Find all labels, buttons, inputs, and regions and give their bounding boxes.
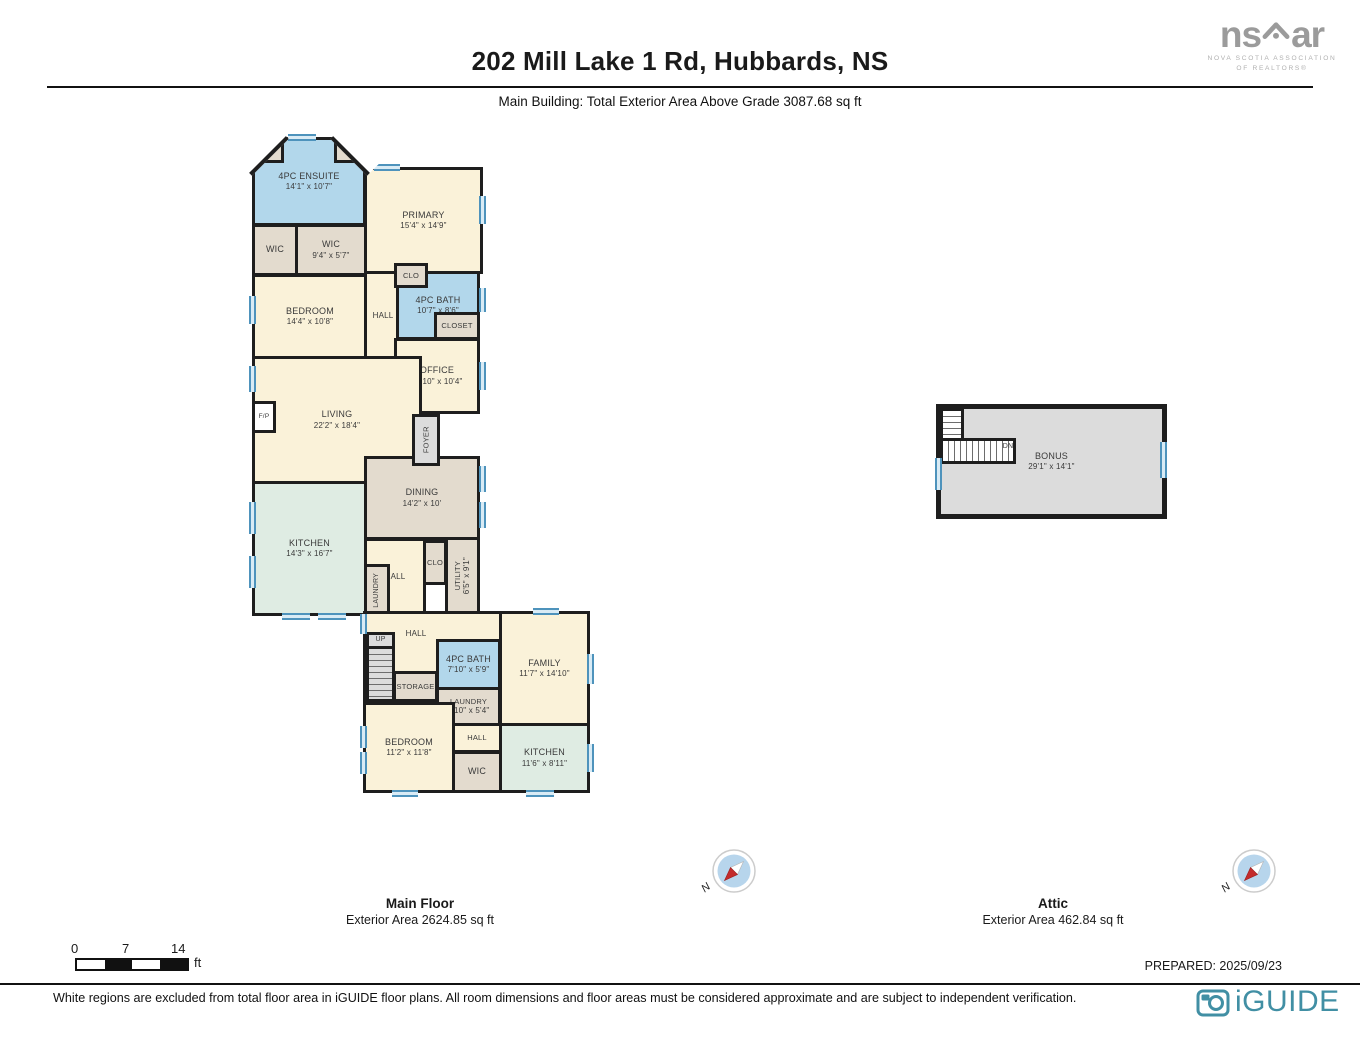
header-divider <box>47 86 1313 88</box>
room-4pc-bath: 4PC BATH7'10" x 5'9" <box>436 639 501 690</box>
room-hall: HALL <box>394 626 438 642</box>
room-hall: HALL <box>452 723 502 753</box>
nsar-caption-2: OF REALTORS® <box>1202 65 1342 72</box>
scale-segment <box>132 960 160 969</box>
compass-attic: N <box>1231 848 1277 894</box>
scale-segment <box>160 960 188 969</box>
scale-unit: ft <box>194 955 201 970</box>
room-label: CLO <box>403 271 419 280</box>
room-label: BEDROOM11'2" x 11'8" <box>385 737 433 758</box>
room-label: HALL <box>467 733 487 742</box>
stair-treads <box>369 649 392 699</box>
room-kitchen: KITCHEN11'6" x 8'11" <box>499 723 590 793</box>
room-foyer: FOYER <box>412 414 440 466</box>
window-marker <box>479 466 486 492</box>
room-area <box>940 408 964 441</box>
room-area <box>366 646 395 702</box>
room-wic: WIC9'4" x 5'7" <box>295 224 367 276</box>
scale-bar-segments <box>75 958 189 971</box>
compass-main-floor: N <box>711 848 757 894</box>
window-marker <box>360 752 367 774</box>
page-subtitle: Main Building: Total Exterior Area Above… <box>0 94 1360 109</box>
window-marker <box>587 654 594 684</box>
window-marker <box>1160 442 1167 478</box>
window-marker <box>249 502 256 534</box>
room-label: CLO <box>427 558 443 567</box>
room-laundry: LAUNDRY <box>364 564 390 616</box>
room-label: DN <box>1003 443 1014 452</box>
window-marker <box>249 366 256 392</box>
room-label: STORAGE <box>397 682 435 691</box>
nsar-ns-text: ns <box>1220 18 1261 52</box>
room-kitchen: KITCHEN14'3" x 16'7" <box>252 481 367 616</box>
room-label: BEDROOM14'4" x 10'8" <box>286 306 334 327</box>
window-marker <box>249 556 256 588</box>
room-f-p: F/P <box>252 401 276 433</box>
footer-divider <box>0 983 1360 985</box>
stair-treads <box>943 411 961 438</box>
room-label: PRIMARY15'4" x 14'9" <box>400 210 446 231</box>
window-marker <box>374 164 400 171</box>
disclaimer-text: White regions are excluded from total fl… <box>53 991 1076 1005</box>
room-family: FAMILY11'7" x 14'10" <box>499 611 590 726</box>
attic-area: Exterior Area 462.84 sq ft <box>903 913 1203 927</box>
room-label: WIC <box>468 766 486 777</box>
scale-tick-0: 0 <box>71 941 78 956</box>
iguide-camera-icon <box>1196 988 1230 1017</box>
room-label: CLOSET <box>441 321 472 330</box>
room-label: WIC9'4" x 5'7" <box>312 239 349 260</box>
window-marker <box>288 134 316 141</box>
room-label: FOYER <box>421 427 430 454</box>
window-marker <box>479 362 486 390</box>
room-storage: STORAGE <box>393 671 438 702</box>
room-label: LAUNDRY <box>373 573 382 608</box>
window-marker <box>587 744 594 772</box>
iguide-logo: iGUIDE <box>1196 985 1340 1019</box>
scale-segment <box>105 960 133 969</box>
nsar-caption-1: NOVA SCOTIA ASSOCIATION <box>1202 55 1342 62</box>
room-label: UTILITY6'5" x 9'1" <box>453 557 472 594</box>
nsar-logo: ns ar NOVA SCOTIA ASSOCIATION OF REALTOR… <box>1202 18 1342 72</box>
room-label: F/P <box>259 413 270 421</box>
scale-tick-14: 14 <box>171 941 185 956</box>
room-label: WIC <box>266 244 284 255</box>
room-utility: UTILITY6'5" x 9'1" <box>445 537 480 614</box>
scale-segment <box>77 960 105 969</box>
main-floor-area: Exterior Area 2624.85 sq ft <box>270 913 570 927</box>
window-marker <box>935 458 942 490</box>
room-label: HALL <box>406 629 427 639</box>
room-primary: PRIMARY15'4" x 14'9" <box>364 167 483 274</box>
window-marker <box>249 296 256 324</box>
nsar-wordmark: ns ar <box>1202 18 1342 52</box>
house-icon <box>1262 20 1290 46</box>
room-label: HALL <box>373 311 394 321</box>
room-bedroom: BEDROOM11'2" x 11'8" <box>363 702 455 793</box>
window-marker <box>318 613 346 620</box>
room-dn: DN <box>996 440 1020 454</box>
attic-title: Attic <box>903 896 1203 911</box>
window-marker <box>479 502 486 528</box>
window-marker <box>282 613 310 620</box>
room-clo: CLO <box>394 263 428 288</box>
main-floor-caption: Main Floor Exterior Area 2624.85 sq ft <box>270 896 570 927</box>
room-label: UP <box>375 636 385 645</box>
room-wic: WIC <box>252 224 298 276</box>
room-label: KITCHEN14'3" x 16'7" <box>286 538 332 559</box>
compass-icon <box>1231 848 1277 894</box>
iguide-wordmark: iGUIDE <box>1235 985 1340 1019</box>
room-label: LIVING22'2" x 18'4" <box>314 409 360 430</box>
scale-bar: 0 7 14 ft <box>75 941 225 975</box>
window-marker <box>479 196 486 224</box>
room-dining: DINING14'2" x 10' <box>364 456 480 540</box>
room-bedroom: BEDROOM14'4" x 10'8" <box>252 274 368 359</box>
page: 202 Mill Lake 1 Rd, Hubbards, NS Main Bu… <box>0 0 1360 1051</box>
room-clo: CLO <box>423 540 447 585</box>
room-label: KITCHEN11'6" x 8'11" <box>522 747 567 768</box>
window-marker <box>360 614 367 634</box>
prepared-date: PREPARED: 2025/09/23 <box>1145 959 1282 973</box>
window-marker <box>526 790 554 797</box>
window-marker <box>360 726 367 748</box>
room-label: 4PC BATH7'10" x 5'9" <box>446 654 491 675</box>
room-label: DINING14'2" x 10' <box>403 487 442 508</box>
room-label: BONUS29'1" x 14'1" <box>1028 451 1074 472</box>
window-marker <box>533 608 559 615</box>
room-label: FAMILY11'7" x 14'10" <box>519 658 570 679</box>
attic-caption: Attic Exterior Area 462.84 sq ft <box>903 896 1203 927</box>
window-marker <box>392 790 418 797</box>
compass-icon <box>711 848 757 894</box>
window-marker <box>479 288 486 312</box>
nsar-ar-text: ar <box>1291 18 1324 52</box>
page-title: 202 Mill Lake 1 Rd, Hubbards, NS <box>0 46 1360 77</box>
main-floor-title: Main Floor <box>270 896 570 911</box>
scale-tick-7: 7 <box>122 941 129 956</box>
room-wic: WIC <box>452 751 502 793</box>
room-label: 4PC ENSUITE14'1" x 10'7" <box>278 171 339 192</box>
room-closet: CLOSET <box>434 312 480 340</box>
